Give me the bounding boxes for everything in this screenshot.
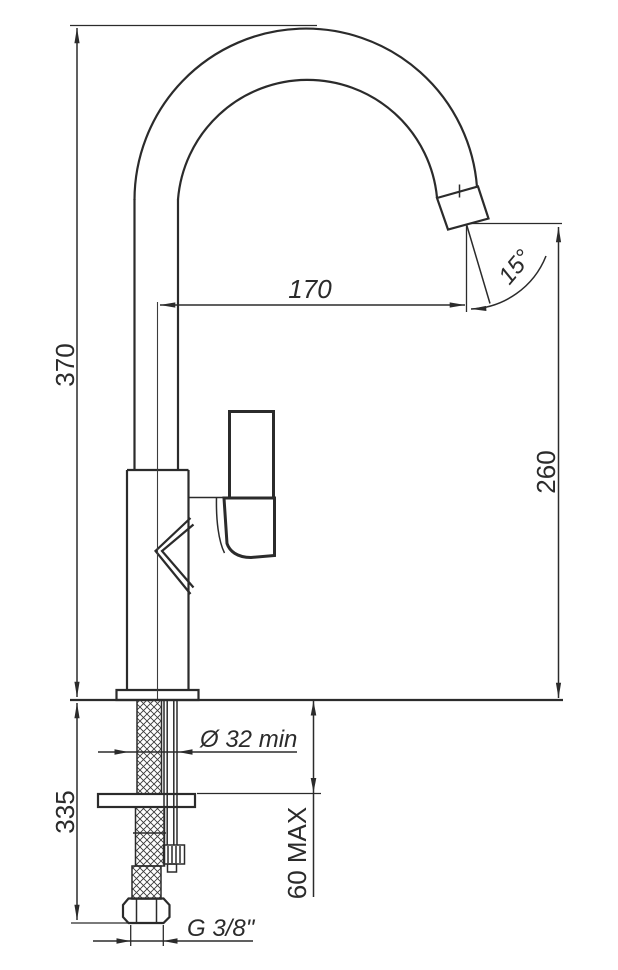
supply-hose-lower (132, 866, 161, 899)
faucet-outline (117, 29, 489, 700)
dim-thread-arrow-left (117, 938, 132, 943)
dim-spout-reach-label: 170 (288, 274, 332, 304)
handle-lever (230, 412, 274, 499)
dim-spout-angle-label: 15° (493, 244, 537, 289)
spout-outer-arc (135, 29, 478, 200)
dim-overall-height-label: 370 (50, 343, 80, 386)
mounting-stud (164, 700, 177, 845)
dim-thread-arrow-right (163, 938, 178, 943)
elbow-fitting (164, 845, 185, 864)
handle-base (224, 498, 275, 558)
dim-hole-arrow-right (178, 749, 193, 754)
supply-hose-upper (136, 807, 165, 866)
threaded-shank (137, 700, 162, 794)
dim-hole-label: Ø 32 min (199, 726, 297, 753)
hose-nut (123, 899, 170, 924)
dim-counter-thickness-label: 60 MAX (282, 807, 312, 900)
elbow-hatch (168, 846, 180, 863)
mounting-washer (98, 794, 195, 807)
dim-tip-height-label: 260 (531, 450, 561, 493)
spout-inner-arc (178, 80, 437, 200)
dim-below-counter-label: 335 (50, 790, 80, 833)
dim-counter-thickness-arrow-up (311, 701, 317, 716)
dim-thread-label: G 3/8" (187, 915, 256, 942)
hose-nut-facets (137, 899, 157, 924)
drawing-canvas: 370 335 170 15° 260 60 MAX Ø 32 min (0, 0, 618, 970)
swivel-chevron-outer (156, 518, 191, 594)
faucet-technical-drawing: 370 335 170 15° 260 60 MAX Ø 32 min (0, 0, 618, 970)
spout-angle-leg (467, 225, 490, 304)
below-counter-assembly (70, 700, 563, 923)
dim-counter-thickness-arrow-down (311, 778, 317, 793)
elbow-stub (168, 864, 177, 872)
dim-hole-arrow-left (115, 749, 130, 754)
